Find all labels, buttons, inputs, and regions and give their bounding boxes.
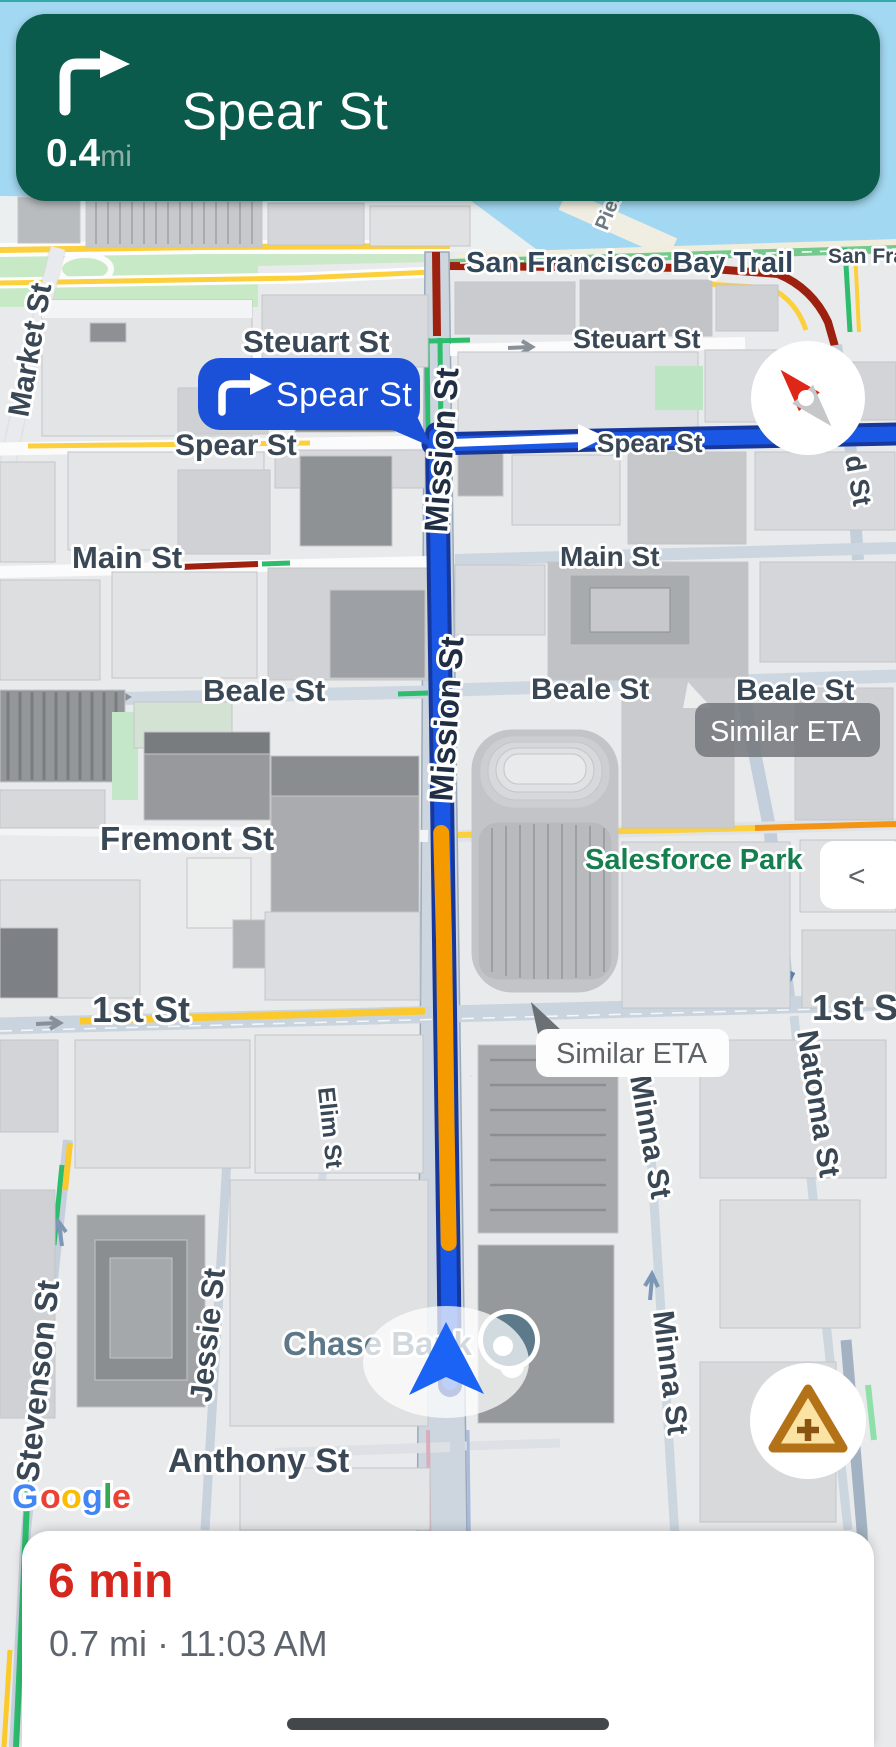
svg-text:Beale St: Beale St: [736, 674, 854, 707]
svg-text:Steuart St: Steuart St: [243, 324, 389, 359]
svg-text:1st S: 1st S: [812, 987, 896, 1028]
svg-text:g: g: [82, 1478, 103, 1516]
svg-text:o: o: [61, 1478, 82, 1516]
svg-text:Similar ETA: Similar ETA: [710, 716, 862, 748]
svg-text:Spear St: Spear St: [276, 376, 412, 414]
svg-text:Spear St: Spear St: [597, 428, 703, 458]
svg-text:Beale St: Beale St: [203, 673, 325, 708]
svg-text:Steuart St: Steuart St: [573, 324, 701, 354]
svg-text:Main St: Main St: [72, 540, 182, 575]
svg-text:e: e: [112, 1478, 131, 1516]
svg-text:o: o: [40, 1478, 61, 1516]
svg-text:Spear St: Spear St: [175, 429, 297, 462]
svg-text:San Francisco Bay Trail: San Francisco Bay Trail: [466, 247, 793, 279]
svg-text:1st St: 1st St: [92, 989, 190, 1030]
svg-text:San Fran: San Fran: [828, 245, 896, 268]
svg-text:Anthony St: Anthony St: [168, 1442, 349, 1480]
svg-text:Fremont St: Fremont St: [100, 820, 274, 857]
svg-text:<: <: [848, 860, 866, 893]
svg-text:G: G: [12, 1478, 38, 1516]
svg-text:Main St: Main St: [560, 541, 660, 572]
svg-text:Salesforce Park: Salesforce Park: [585, 844, 804, 876]
svg-text:Beale St: Beale St: [531, 673, 649, 706]
svg-text:Similar ETA: Similar ETA: [556, 1038, 708, 1070]
